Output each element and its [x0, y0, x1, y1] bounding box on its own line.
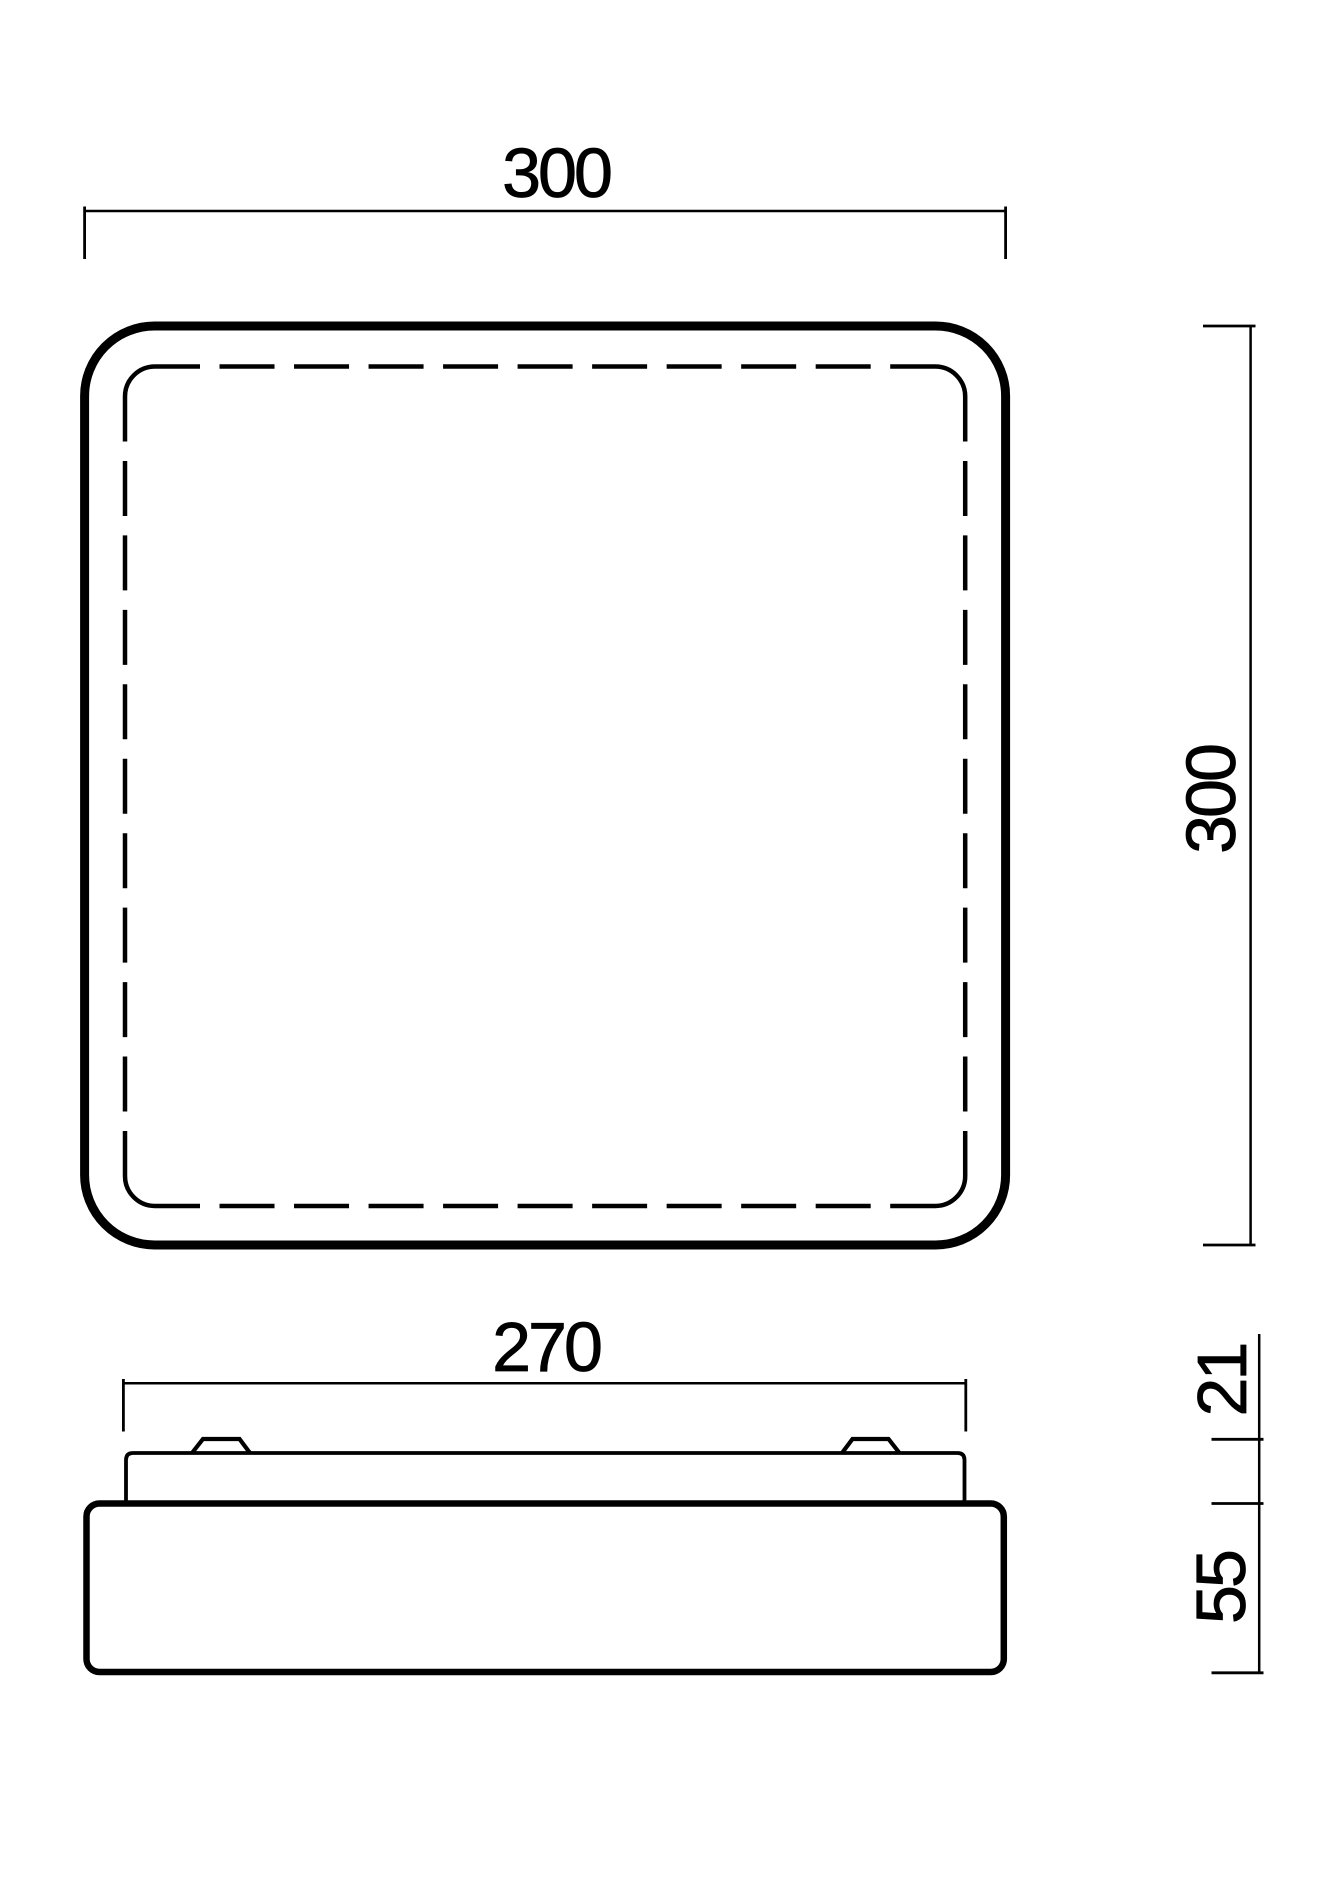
svg-text:55: 55 — [1182, 1552, 1260, 1624]
svg-text:300: 300 — [502, 134, 611, 212]
svg-text:270: 270 — [492, 1308, 601, 1386]
svg-text:21: 21 — [1183, 1345, 1261, 1417]
svg-text:300: 300 — [1172, 745, 1250, 854]
